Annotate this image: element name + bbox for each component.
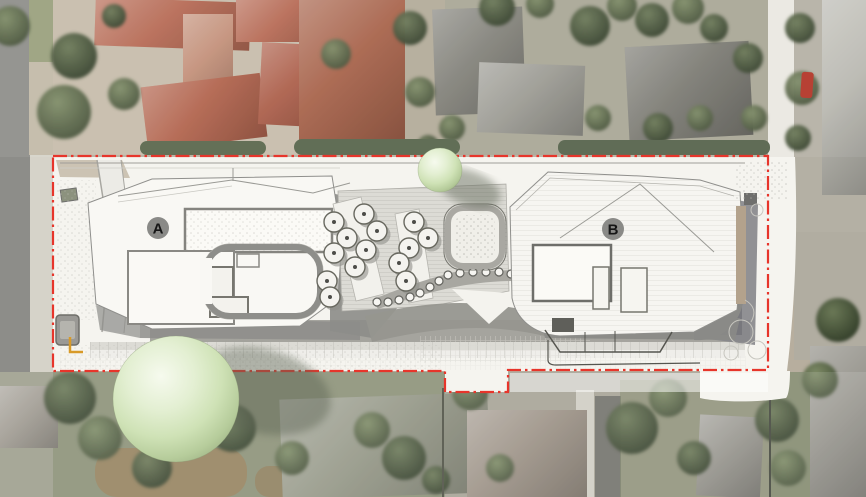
umbrella-center (412, 220, 416, 224)
courtyard-pool (444, 204, 506, 270)
umbrella-center (397, 261, 401, 265)
umbrella-center (426, 236, 430, 240)
umbrella-center (332, 220, 336, 224)
umbrella-center (345, 236, 349, 240)
building-marker-label: A (153, 220, 164, 237)
bollard-icon (395, 296, 403, 304)
bollard-icon (469, 268, 477, 276)
umbrella-center (375, 229, 379, 233)
bollard-icon (373, 298, 381, 306)
bollard-icon (435, 277, 443, 285)
bollard-icon (416, 289, 424, 297)
umbrella-center (332, 251, 336, 255)
umbrella-center (407, 246, 411, 250)
tree-sphere (418, 148, 462, 192)
umbrella-center (362, 212, 366, 216)
bollard-icon (406, 293, 414, 301)
tree-sphere (113, 336, 239, 462)
umbrella-center (328, 295, 332, 299)
umbrella-center (353, 265, 357, 269)
architectural-plan-layer: AB (0, 0, 866, 497)
bollard-icon (384, 298, 392, 306)
umbrella-center (404, 279, 408, 283)
pool-texture (455, 215, 495, 259)
bollard-icon (482, 268, 490, 276)
umbrella-center (364, 248, 368, 252)
bollard-icon (495, 268, 503, 276)
umbrella-center (325, 279, 329, 283)
faded-photo-band (510, 373, 768, 392)
bollard-icon (444, 271, 452, 279)
bollard-icon (426, 283, 434, 291)
building-marker-label: B (608, 221, 619, 238)
site-plan-canvas: AB (0, 0, 866, 497)
building-a-roof-plan (88, 168, 350, 329)
